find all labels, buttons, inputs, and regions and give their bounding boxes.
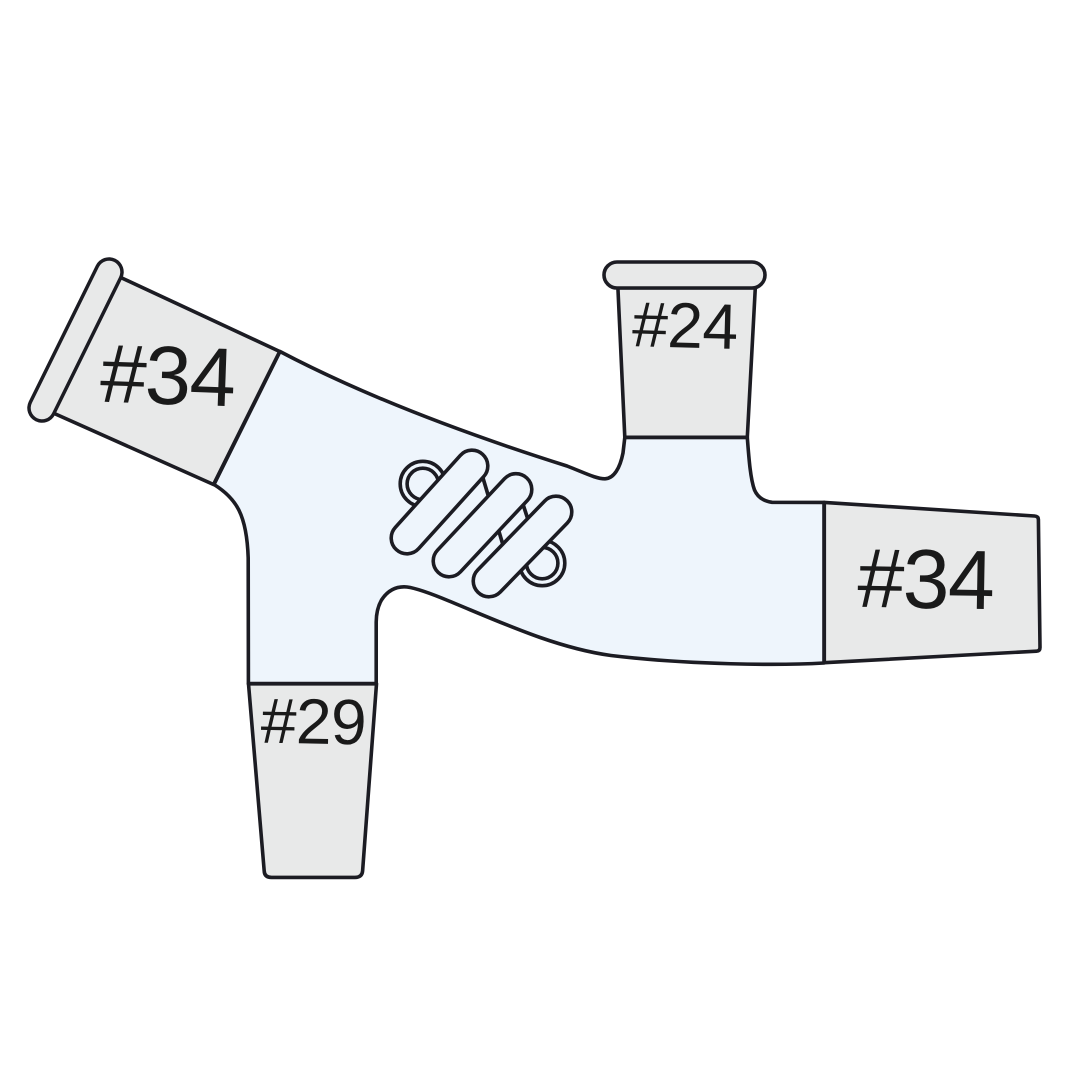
svg-text:#34: #34: [99, 327, 236, 425]
svg-text:#29: #29: [260, 685, 367, 759]
svg-text:#24: #24: [631, 288, 738, 363]
svg-text:#34: #34: [857, 531, 994, 627]
